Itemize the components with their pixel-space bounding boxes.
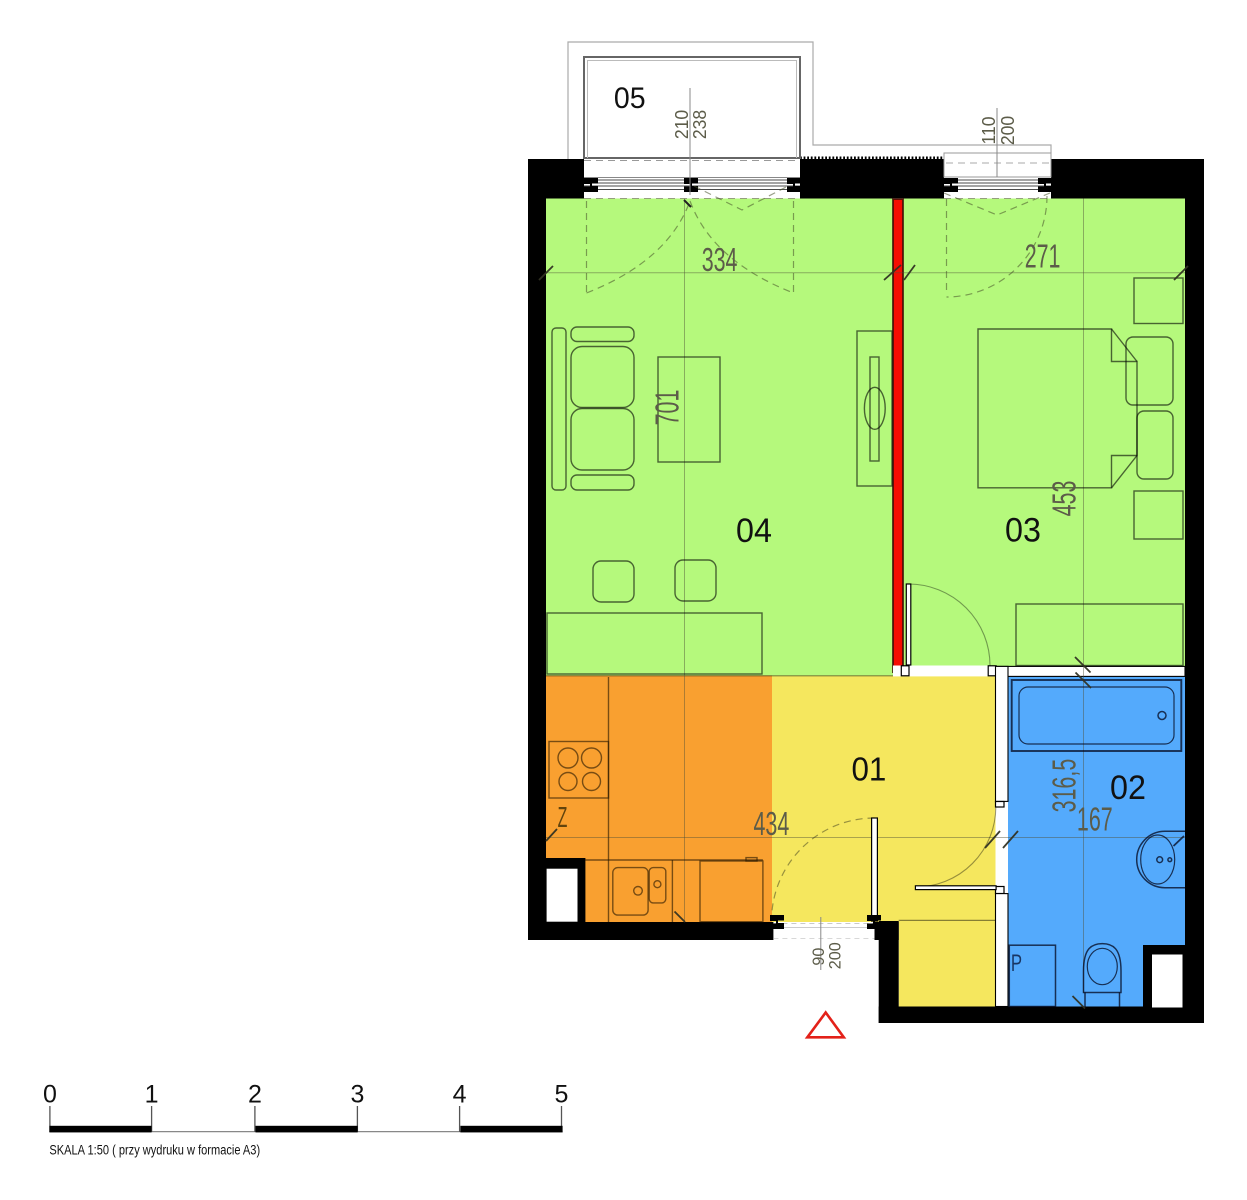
svg-text:238: 238 (690, 110, 711, 139)
svg-text:0: 0 (43, 1081, 57, 1109)
svg-text:04: 04 (736, 512, 772, 550)
svg-text:4: 4 (453, 1081, 467, 1109)
svg-text:200: 200 (998, 116, 1019, 145)
svg-text:1: 1 (145, 1081, 159, 1109)
svg-text:03: 03 (1005, 512, 1041, 550)
svg-text:3: 3 (350, 1081, 364, 1109)
svg-text:P: P (1011, 950, 1022, 977)
svg-text:5: 5 (555, 1081, 569, 1109)
svg-text:05: 05 (614, 82, 646, 115)
svg-text:316,5: 316,5 (1046, 759, 1083, 813)
svg-text:02: 02 (1110, 769, 1146, 807)
svg-text:334: 334 (702, 241, 738, 278)
svg-text:2: 2 (248, 1081, 262, 1109)
svg-text:701: 701 (649, 390, 686, 426)
svg-text:200: 200 (825, 942, 844, 969)
svg-text:Z: Z (558, 801, 568, 833)
svg-text:SKALA 1:50 ( przy wydruku w fo: SKALA 1:50 ( przy wydruku w formacie A3) (49, 1142, 260, 1158)
svg-text:110: 110 (979, 116, 1000, 144)
svg-text:01: 01 (851, 751, 886, 788)
svg-text:271: 271 (1025, 238, 1061, 275)
svg-text:453: 453 (1046, 481, 1083, 517)
svg-text:434: 434 (754, 805, 790, 842)
